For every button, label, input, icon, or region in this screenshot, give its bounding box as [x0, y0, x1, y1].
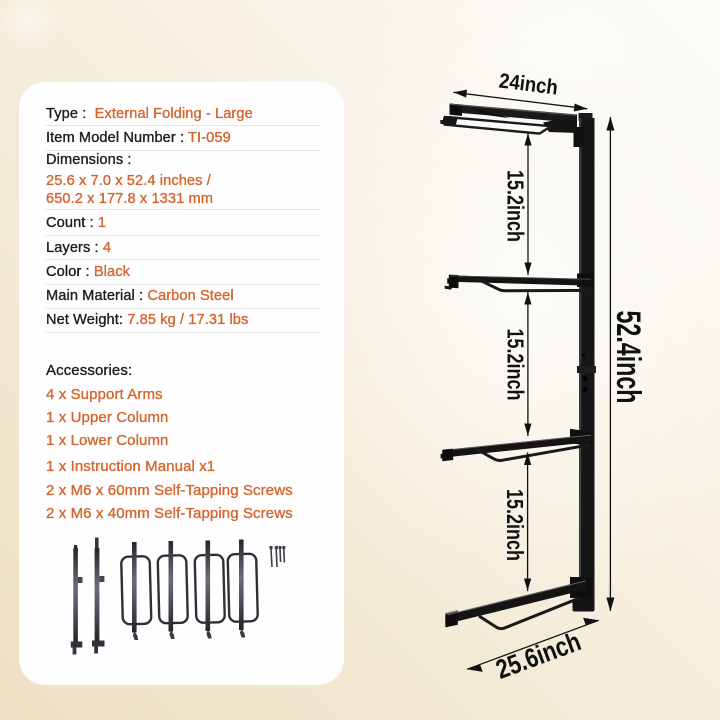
svg-text:25.6inch: 25.6inch — [492, 626, 585, 685]
svg-text:52.4inch: 52.4inch — [609, 311, 647, 404]
svg-text:15.2inch: 15.2inch — [502, 329, 528, 401]
svg-text:24inch: 24inch — [498, 70, 559, 100]
svg-text:15.2inch: 15.2inch — [503, 170, 529, 242]
svg-text:15.2inch: 15.2inch — [502, 489, 528, 561]
